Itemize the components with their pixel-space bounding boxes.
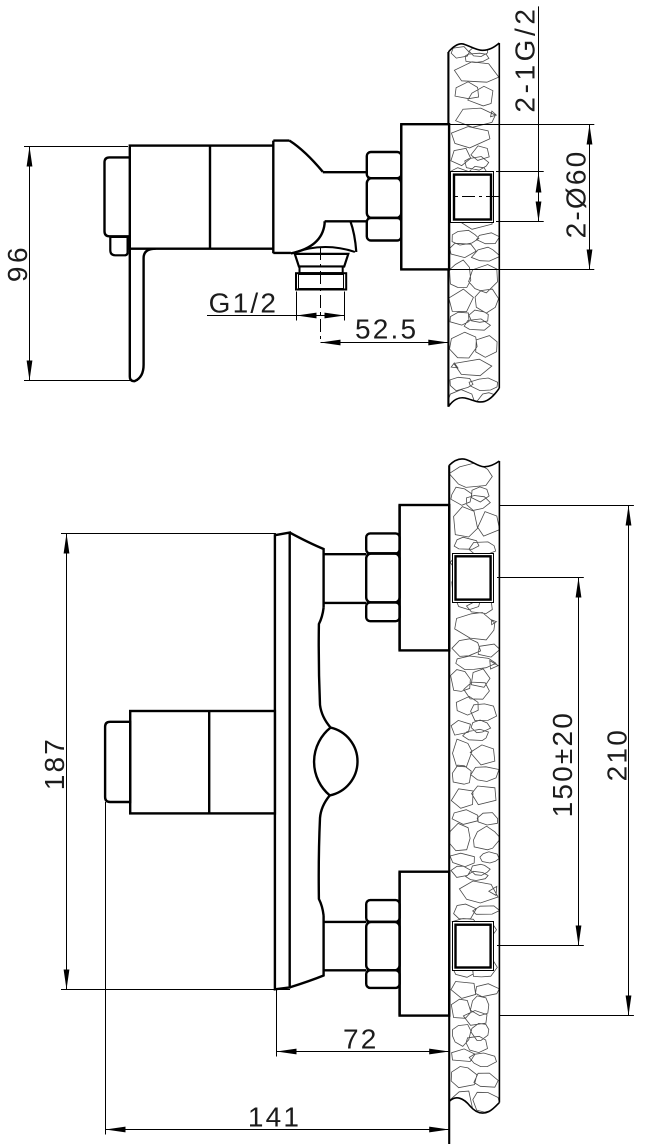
svg-text:96: 96: [2, 244, 33, 282]
svg-text:72: 72: [343, 1023, 379, 1054]
svg-text:187: 187: [39, 737, 70, 790]
svg-text:2-Ø60: 2-Ø60: [561, 150, 592, 239]
svg-text:2-1G/2: 2-1G/2: [510, 5, 541, 112]
svg-text:52.5: 52.5: [355, 313, 418, 344]
svg-text:G1/2: G1/2: [209, 287, 279, 318]
svg-text:141: 141: [248, 1101, 301, 1132]
svg-text:150±20: 150±20: [547, 711, 578, 817]
svg-text:210: 210: [602, 728, 633, 781]
